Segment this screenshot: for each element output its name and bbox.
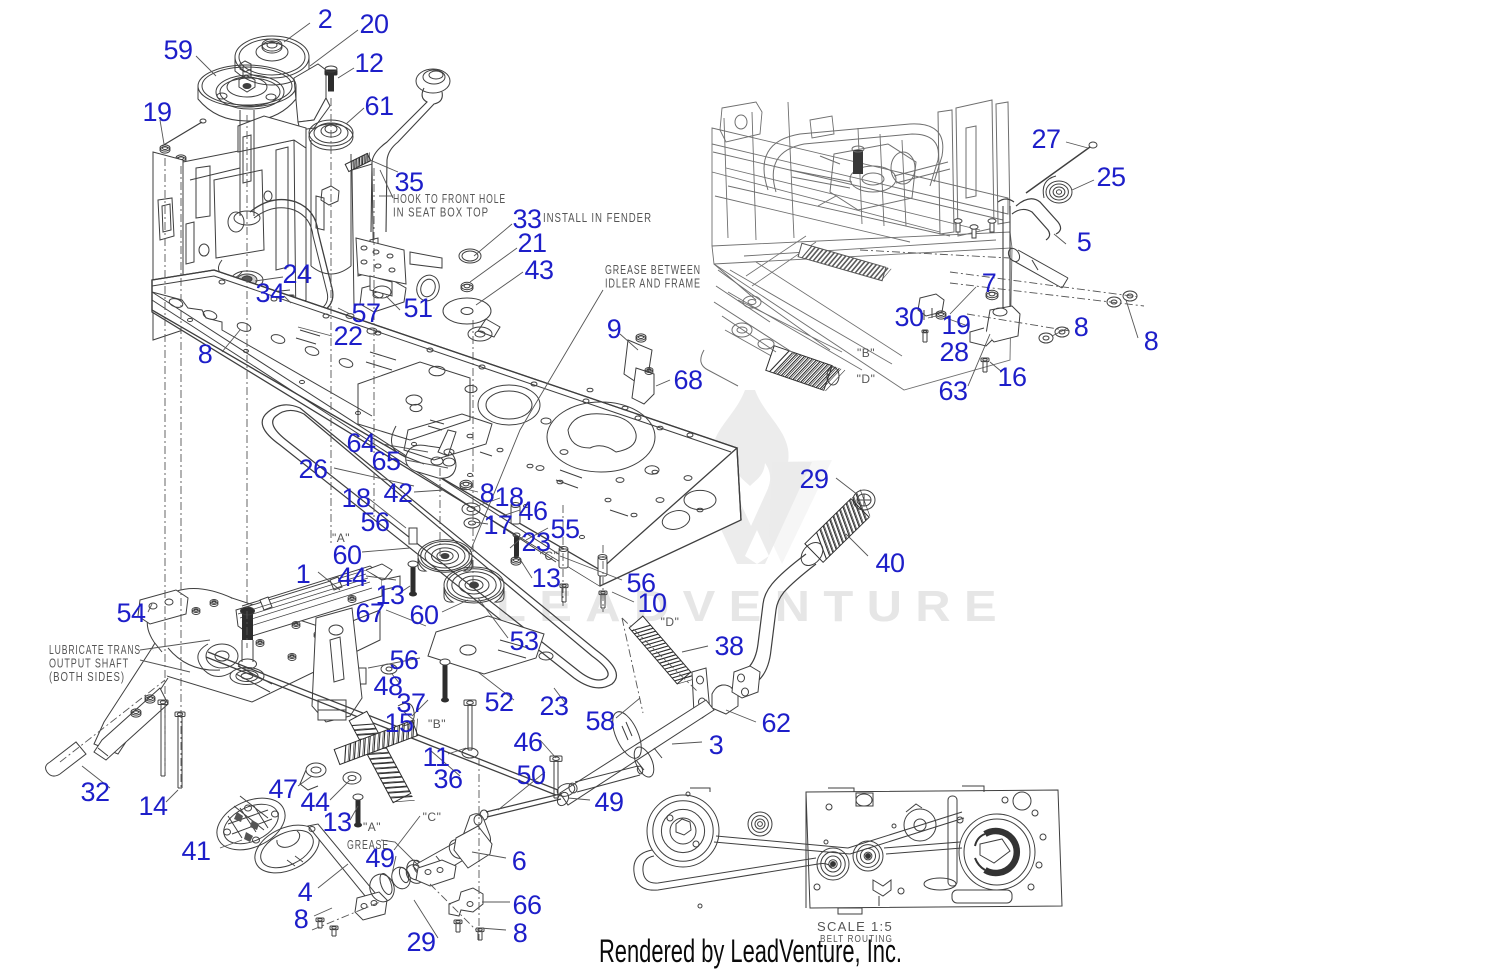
- svg-text:25: 25: [1096, 162, 1125, 192]
- svg-text:30: 30: [894, 302, 923, 332]
- svg-text:50: 50: [516, 760, 545, 790]
- svg-text:49: 49: [594, 787, 623, 817]
- svg-text:24: 24: [282, 259, 312, 289]
- svg-text:5: 5: [1077, 227, 1092, 257]
- svg-text:23: 23: [539, 691, 568, 721]
- svg-text:6: 6: [512, 846, 527, 876]
- svg-text:46: 46: [513, 727, 542, 757]
- svg-text:38: 38: [714, 631, 743, 661]
- svg-text:12: 12: [354, 48, 383, 78]
- svg-text:2: 2: [318, 4, 333, 34]
- svg-text:32: 32: [80, 777, 109, 807]
- svg-text:3: 3: [709, 730, 724, 760]
- svg-text:61: 61: [364, 91, 393, 121]
- svg-text:(BOTH SIDES): (BOTH SIDES): [49, 669, 125, 684]
- svg-text:58: 58: [585, 706, 614, 736]
- svg-text:22: 22: [333, 321, 362, 351]
- svg-text:IN SEAT BOX TOP: IN SEAT BOX TOP: [393, 205, 489, 220]
- svg-text:28: 28: [939, 337, 968, 367]
- svg-text:1: 1: [296, 559, 311, 589]
- svg-text:51: 51: [403, 293, 432, 323]
- svg-text:19: 19: [941, 310, 970, 340]
- svg-text:46: 46: [518, 496, 547, 526]
- svg-text:8: 8: [198, 339, 213, 369]
- svg-text:INSTALL IN FENDER: INSTALL IN FENDER: [543, 210, 652, 225]
- svg-text:10: 10: [637, 588, 666, 618]
- svg-text:8: 8: [1074, 312, 1089, 342]
- svg-text:44: 44: [337, 562, 367, 592]
- svg-text:67: 67: [355, 598, 384, 628]
- svg-text:62: 62: [761, 708, 790, 738]
- svg-text:27: 27: [1031, 124, 1060, 154]
- svg-text:53: 53: [509, 626, 538, 656]
- svg-text:65: 65: [371, 446, 400, 476]
- svg-text:26: 26: [298, 454, 327, 484]
- svg-text:19: 19: [142, 97, 171, 127]
- svg-text:Rendered by LeadVenture, Inc.: Rendered by LeadVenture, Inc.: [599, 933, 902, 969]
- svg-text:14: 14: [138, 791, 168, 821]
- svg-text:21: 21: [517, 228, 546, 258]
- svg-text:60: 60: [409, 600, 438, 630]
- svg-text:52: 52: [484, 687, 513, 717]
- svg-text:47: 47: [268, 774, 297, 804]
- svg-text:66: 66: [512, 890, 541, 920]
- svg-text:59: 59: [163, 35, 192, 65]
- svg-text:"D": "D": [857, 372, 876, 386]
- svg-text:13: 13: [322, 807, 351, 837]
- svg-text:8: 8: [480, 478, 495, 508]
- svg-text:15: 15: [384, 708, 413, 738]
- svg-text:16: 16: [997, 362, 1026, 392]
- svg-text:"B": "B": [857, 346, 875, 360]
- svg-text:8: 8: [294, 904, 309, 934]
- svg-text:LEADVENTURE: LEADVENTURE: [496, 582, 1010, 631]
- svg-text:36: 36: [433, 764, 462, 794]
- svg-text:7: 7: [982, 268, 997, 298]
- svg-text:13: 13: [531, 563, 560, 593]
- svg-text:41: 41: [181, 836, 210, 866]
- svg-text:34: 34: [255, 278, 285, 308]
- svg-text:17: 17: [483, 510, 512, 540]
- svg-text:9: 9: [607, 314, 622, 344]
- svg-text:55: 55: [550, 514, 579, 544]
- svg-text:29: 29: [799, 464, 828, 494]
- svg-text:43: 43: [524, 255, 553, 285]
- svg-text:"A": "A": [363, 820, 381, 834]
- svg-text:8: 8: [1144, 326, 1159, 356]
- svg-text:54: 54: [116, 598, 146, 628]
- svg-text:8: 8: [513, 918, 528, 948]
- svg-text:"A": "A": [332, 531, 350, 545]
- svg-text:4: 4: [298, 877, 313, 907]
- svg-text:42: 42: [383, 478, 412, 508]
- svg-text:56: 56: [360, 507, 389, 537]
- svg-text:"C": "C": [423, 810, 442, 824]
- svg-text:"C": "C": [540, 549, 559, 563]
- svg-text:SCALE 1:5: SCALE 1:5: [817, 919, 893, 934]
- svg-text:"D": "D": [661, 615, 680, 629]
- svg-text:29: 29: [406, 927, 435, 957]
- svg-text:"B": "B": [428, 717, 446, 731]
- svg-text:68: 68: [673, 365, 702, 395]
- svg-text:40: 40: [875, 548, 904, 578]
- svg-text:20: 20: [359, 9, 388, 39]
- svg-text:63: 63: [938, 376, 967, 406]
- svg-text:GREASE: GREASE: [347, 837, 389, 852]
- svg-text:IDLER AND FRAME: IDLER AND FRAME: [605, 276, 701, 291]
